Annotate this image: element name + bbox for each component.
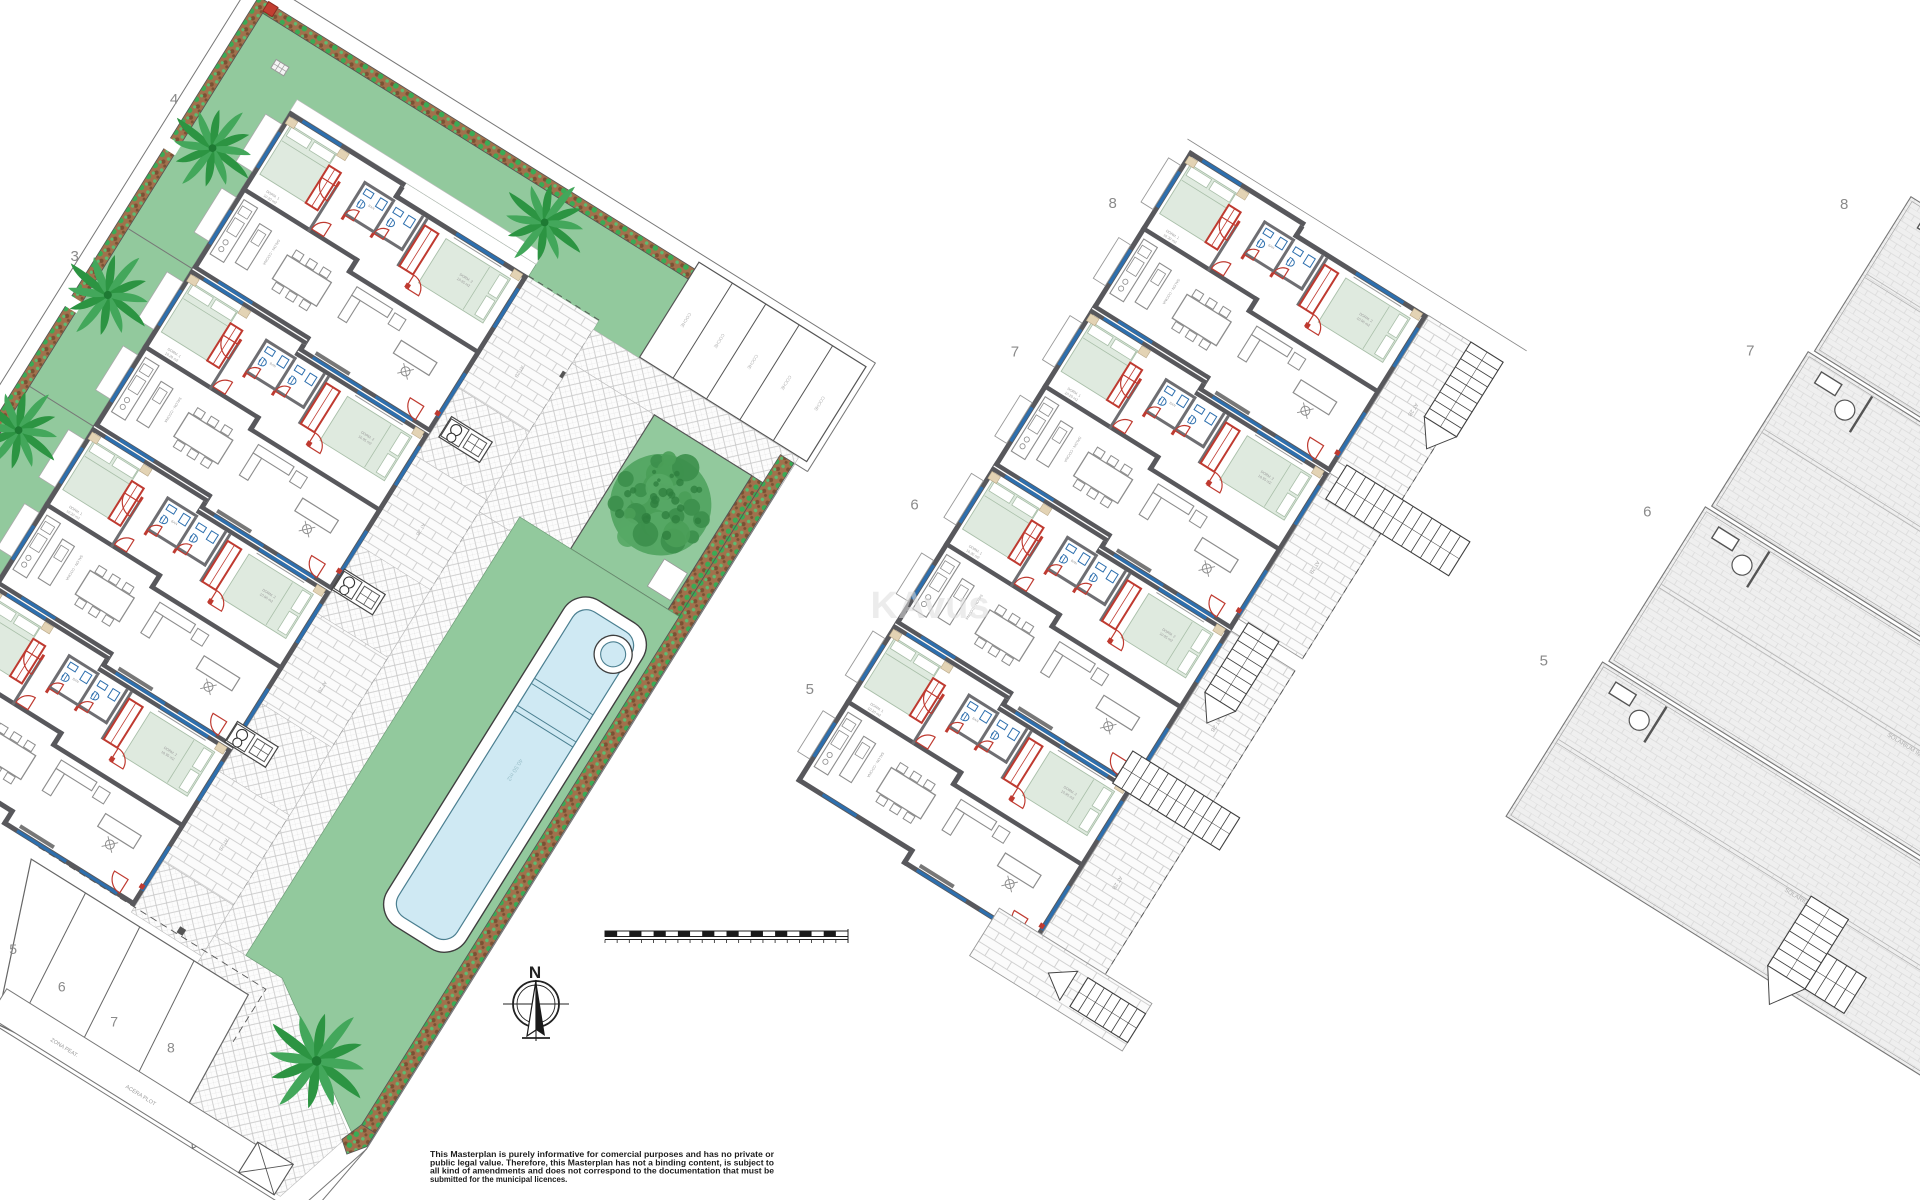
svg-text:7: 7 [1011, 344, 1019, 361]
svg-text:6: 6 [910, 497, 918, 514]
svg-text:5: 5 [9, 941, 17, 957]
svg-text:5: 5 [806, 681, 814, 698]
svg-text:3: 3 [70, 248, 78, 265]
svg-text:8: 8 [167, 1040, 175, 1056]
svg-text:N: N [529, 963, 541, 982]
svg-text:6: 6 [1643, 504, 1651, 521]
svg-text:5: 5 [1540, 652, 1548, 669]
svg-text:7: 7 [110, 1013, 118, 1029]
svg-text:4: 4 [170, 91, 178, 108]
svg-text:submitted for the municipal li: submitted for the municipal licences. [430, 1175, 567, 1184]
svg-text:8: 8 [1840, 196, 1848, 213]
svg-text:6: 6 [58, 978, 66, 994]
svg-text:8: 8 [1108, 195, 1116, 212]
svg-text:KAvus: KAvus [871, 585, 990, 627]
svg-text:7: 7 [1746, 343, 1754, 360]
